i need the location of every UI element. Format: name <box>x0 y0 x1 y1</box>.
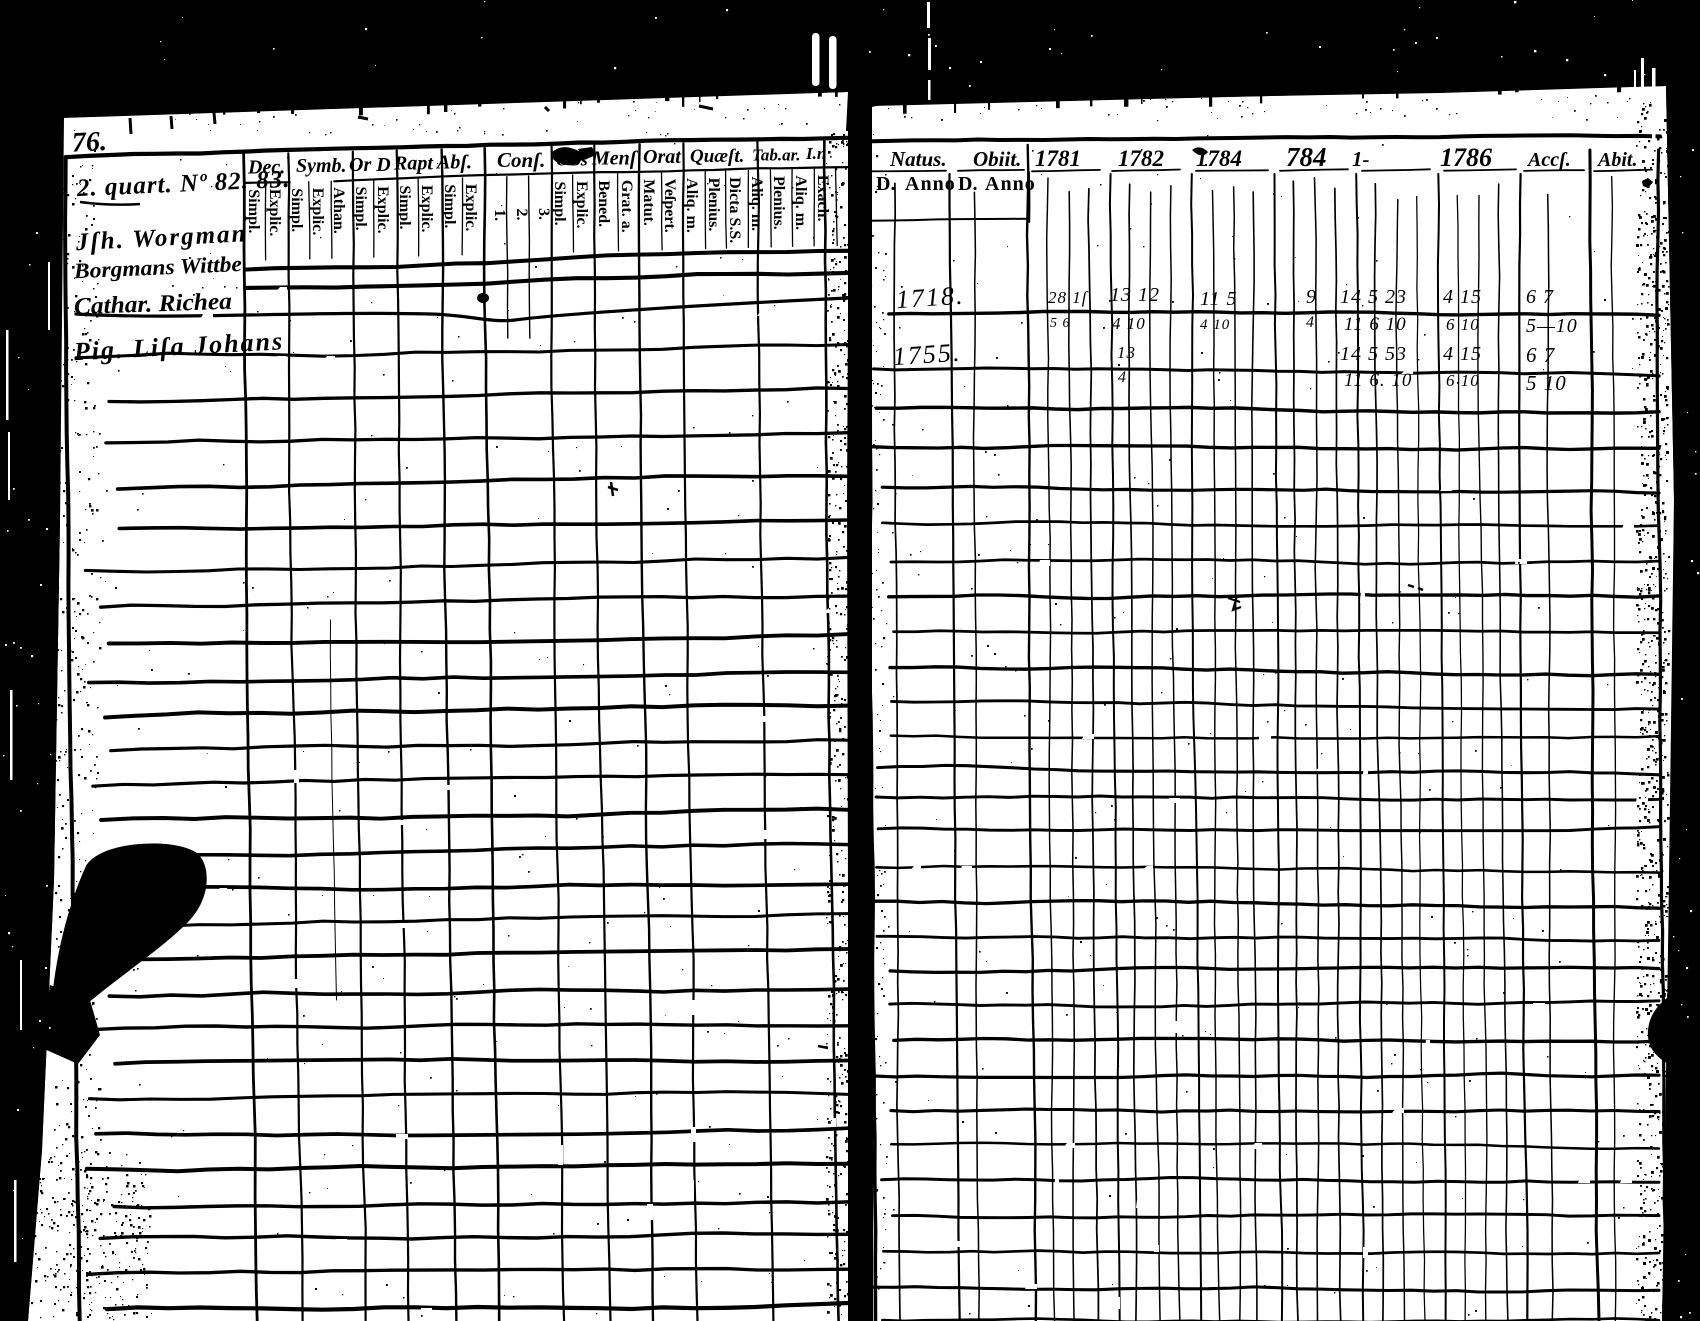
svg-text:5 10: 5 10 <box>1526 371 1567 395</box>
svg-text:4 10: 4 10 <box>1112 314 1146 333</box>
svg-text:Tab.ar.: Tab.ar. <box>752 145 801 164</box>
svg-text:Explic.: Explic. <box>462 184 479 232</box>
svg-text:Explic.: Explic. <box>418 185 435 233</box>
svg-text:Plenius.: Plenius. <box>770 176 787 230</box>
svg-text:Plenius.: Plenius. <box>705 178 722 232</box>
svg-text:Matut.: Matut. <box>640 179 657 226</box>
svg-text:Simpl.: Simpl. <box>551 182 568 226</box>
svg-text:9: 9 <box>1306 286 1317 308</box>
svg-text:1.: 1. <box>491 209 508 221</box>
svg-text:Quæſt.: Quæſt. <box>690 146 744 167</box>
svg-text:1786: 1786 <box>1440 143 1492 172</box>
svg-text:Grat. a.: Grat. a. <box>618 180 635 233</box>
svg-text:5—10: 5—10 <box>1526 315 1578 337</box>
svg-text:Bened.: Bened. <box>595 180 612 227</box>
svg-text:Explic.: Explic. <box>573 181 590 229</box>
svg-text:Natus.: Natus. <box>889 147 947 171</box>
svg-text:4: 4 <box>1306 314 1315 331</box>
svg-text:Aliq. m.: Aliq. m. <box>792 175 809 230</box>
svg-text:1755.: 1755. <box>892 338 962 372</box>
svg-text:Menſ: Menſ <box>591 148 639 170</box>
svg-text:11 6 10: 11 6 10 <box>1344 314 1407 335</box>
svg-text:2.: 2. <box>513 209 530 221</box>
svg-text:6 7: 6 7 <box>1526 286 1554 308</box>
svg-text:6 7: 6 7 <box>1526 343 1556 367</box>
svg-text:784: 784 <box>1286 142 1327 172</box>
svg-text:13: 13 <box>1117 343 1136 362</box>
svg-text:1-: 1- <box>1352 147 1370 171</box>
svg-text:6 10: 6 10 <box>1446 371 1480 390</box>
svg-text:Accſ.: Accſ. <box>1526 149 1571 171</box>
svg-text:Anno: Anno <box>905 173 956 195</box>
svg-text:13 12: 13 12 <box>1110 284 1160 306</box>
svg-text:4: 4 <box>1118 369 1127 386</box>
svg-text:1781: 1781 <box>1035 146 1081 171</box>
svg-text:Dicta S.S.: Dicta S.S. <box>726 177 743 243</box>
svg-text:Explic.: Explic. <box>309 188 326 236</box>
svg-text:4 15: 4 15 <box>1443 286 1482 308</box>
svg-text:Explic.: Explic. <box>266 189 283 237</box>
svg-text:5 6: 5 6 <box>1050 316 1071 331</box>
svg-text:Symb.: Symb. <box>296 155 347 177</box>
svg-text:Simpl.: Simpl. <box>288 188 305 232</box>
svg-text:14 5 23: 14 5 23 <box>1340 286 1407 308</box>
svg-text:Orat: Orat <box>643 146 682 168</box>
svg-text:Exach.: Exach. <box>814 175 831 222</box>
svg-text:Or D: Or D <box>349 154 391 176</box>
svg-text:14 5 53: 14 5 53 <box>1340 343 1407 365</box>
svg-text:3.: 3. <box>535 208 552 220</box>
svg-text:11 5: 11 5 <box>1200 288 1238 310</box>
svg-text:Simpl.: Simpl. <box>352 187 369 231</box>
svg-text:Simpl.: Simpl. <box>245 189 262 233</box>
svg-text:4 15: 4 15 <box>1443 343 1482 365</box>
svg-text:Obiit.: Obiit. <box>973 147 1021 171</box>
svg-text:Abit.: Abit. <box>1596 149 1637 171</box>
svg-text:28 1ſ: 28 1ſ <box>1048 288 1089 307</box>
svg-text:Rapt: Rapt <box>393 153 434 175</box>
svg-text:Conſ.: Conſ. <box>497 148 545 172</box>
svg-text:Athan.: Athan. <box>330 187 347 234</box>
svg-text:D.: D. <box>876 173 895 195</box>
svg-text:Aliq. m.: Aliq. m. <box>683 178 700 233</box>
svg-text:Explic.: Explic. <box>374 186 391 234</box>
svg-text:4 10: 4 10 <box>1200 317 1230 333</box>
svg-text:6 10: 6 10 <box>1446 315 1480 334</box>
svg-text:1718.: 1718. <box>895 281 965 315</box>
svg-text:Veſpert.: Veſpert. <box>661 179 678 233</box>
svg-text:Aliq. m.: Aliq. m. <box>748 177 765 232</box>
svg-text:11 6. 10: 11 6. 10 <box>1344 370 1412 391</box>
